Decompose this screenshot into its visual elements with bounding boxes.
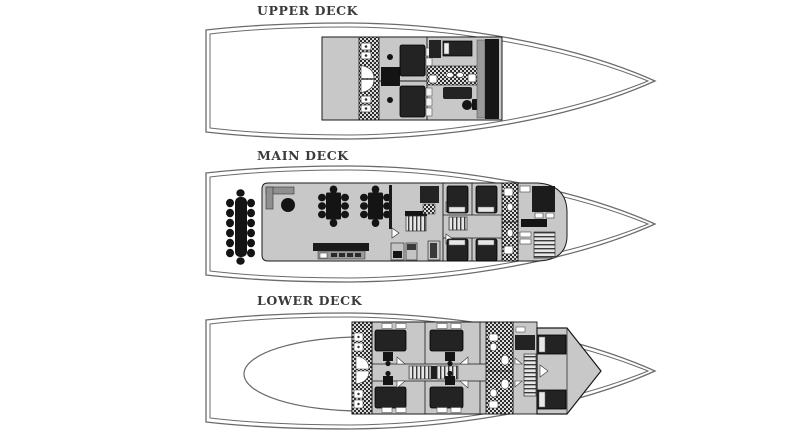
bed [400,45,425,76]
desk [383,352,393,361]
upper-deck-plan [206,23,655,139]
stool [387,54,393,60]
bed [430,330,463,351]
lower-deck-plan [206,313,655,429]
bed [375,330,406,351]
bed [400,86,425,117]
aft-dining-table [226,189,255,265]
pillow [539,392,545,407]
bed [430,387,463,408]
shelf [451,408,461,413]
staircase [406,216,426,231]
toilet-icon [489,401,498,408]
sink-icon [490,389,497,397]
toilet-icon [489,334,498,341]
corridor-stairs [409,366,431,379]
bed [375,387,406,408]
sink-icon [447,72,454,77]
stool [387,97,393,103]
chair [462,100,472,110]
sink-icon [507,203,513,211]
desk [383,376,393,385]
console [477,40,485,118]
toilet-icon [468,74,476,82]
shelf [396,324,406,329]
shelf [437,408,447,413]
wardrobe [429,40,441,58]
coffee-table [281,198,295,212]
l-sofa [266,187,273,209]
main-deck-plan [206,166,655,282]
lower-bathroom-strip-fwd [486,322,513,414]
main-bathroom-strip [502,183,518,261]
pillow [539,337,545,352]
shelf [516,327,525,332]
pillow [426,98,432,106]
windshield [485,39,499,119]
galley-counter [521,219,547,227]
toilet-icon [504,246,513,254]
galley-counter [532,186,555,212]
pillow [444,43,449,54]
wet-unit [423,204,435,214]
pillow [426,58,432,66]
shelf [437,324,447,329]
pillow [478,207,494,212]
bar-counter [313,243,369,259]
pillow [426,88,432,96]
shelf [382,324,392,329]
salon-bulkhead [389,185,392,229]
counter [420,186,439,203]
shelf [382,408,392,413]
desk [445,376,455,385]
berth [515,335,535,350]
pillow [449,240,465,245]
sink-icon [507,229,513,237]
staircase [449,217,467,230]
sink-icon [457,72,464,77]
pillow [426,108,432,116]
staircase [524,354,536,396]
pillow [449,207,465,212]
sink-icon [490,343,497,351]
tv-cabinet [381,67,400,86]
upper-bathroom-strip [359,37,379,120]
toilet-icon [429,75,437,83]
yacht-deck-plan: UPPER DECK MAIN DECK LOWER DECK [0,0,800,434]
pillow [478,240,494,245]
sink-icon [501,379,509,389]
desk [445,352,455,361]
shelf [451,324,461,329]
toilet-icon [504,188,513,196]
shelf [396,408,406,413]
table [235,197,247,257]
lower-bathroom-strip-aft [352,322,372,414]
sofa [443,87,472,99]
sink-icon [501,355,509,365]
deck-plan-drawing [0,0,800,434]
staircase [534,232,555,258]
